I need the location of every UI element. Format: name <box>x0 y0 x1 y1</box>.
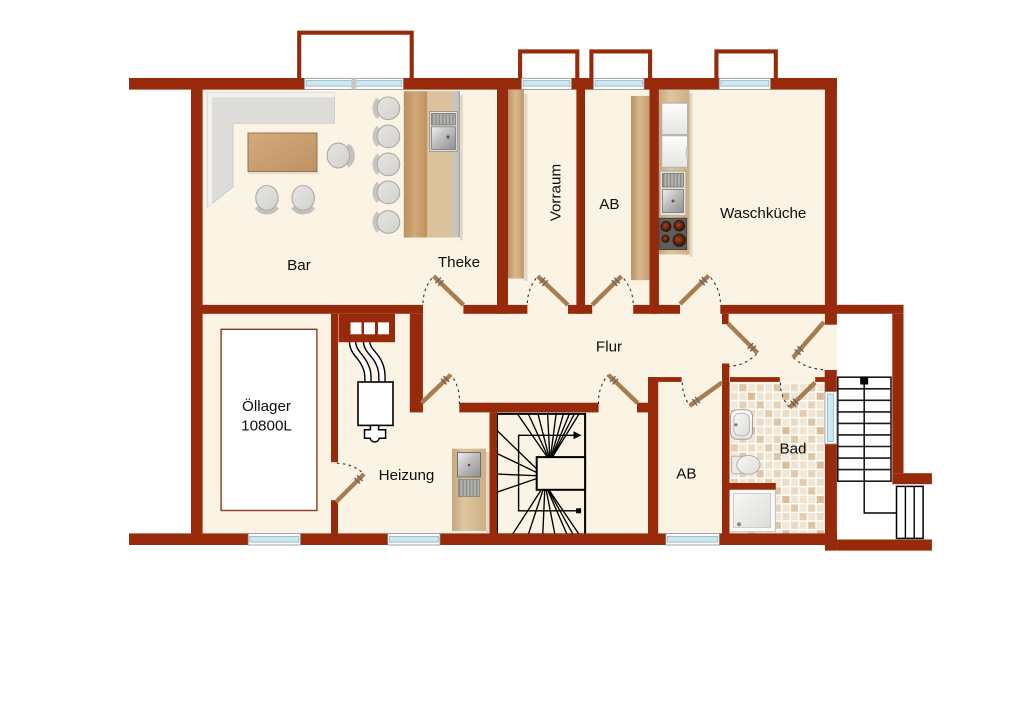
svg-text:AB: AB <box>599 196 619 213</box>
svg-text:Vorraum: Vorraum <box>548 164 565 221</box>
svg-text:Flur: Flur <box>596 339 622 356</box>
svg-text:Öllager: Öllager <box>242 397 291 415</box>
svg-text:Theke: Theke <box>438 254 480 271</box>
svg-text:Bar: Bar <box>287 257 311 274</box>
svg-text:Waschküche: Waschküche <box>720 205 806 222</box>
svg-text:Heizung: Heizung <box>379 467 435 484</box>
svg-text:Bad: Bad <box>779 441 806 458</box>
svg-text:AB: AB <box>676 466 696 483</box>
svg-text:10800L: 10800L <box>241 418 292 435</box>
